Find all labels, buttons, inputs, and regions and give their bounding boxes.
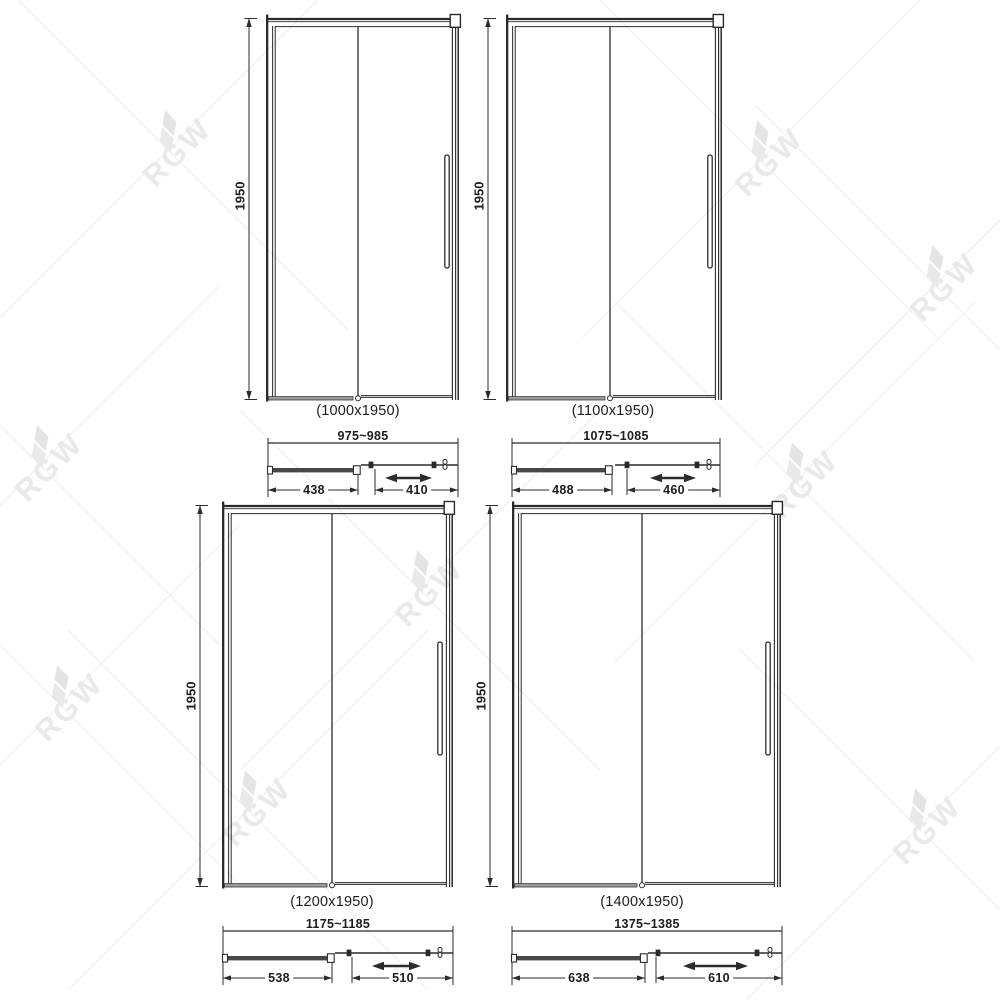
handle-top-view: [438, 947, 442, 952]
roller-marker: [755, 950, 760, 957]
top-right-cap: [444, 502, 454, 515]
technical-drawing-layer: [0, 0, 1000, 1000]
door-4-plan-view: [512, 926, 783, 985]
fixed-panel-top-view: [225, 956, 330, 960]
height-dimension-label: 1950: [234, 182, 247, 211]
dimension-arrowhead: [445, 975, 453, 980]
panel-end-cap: [353, 466, 360, 475]
roller-marker: [695, 462, 700, 469]
dimension-arrowhead: [324, 975, 332, 980]
bottom-guide-roller: [608, 396, 613, 401]
door-size-label: (1200x1950): [290, 895, 374, 910]
dimension-arrowhead: [627, 487, 635, 492]
door-size-label: (1400x1950): [600, 895, 684, 910]
slide-direction-arrowhead: [385, 474, 397, 483]
door-3-plan-view: [223, 926, 454, 985]
overall-width-label: 1075~1085: [583, 430, 649, 443]
fixed-panel-width-label: 638: [565, 971, 593, 986]
slide-direction-arrowhead: [684, 474, 696, 483]
door-1-front-view: [245, 15, 461, 402]
dimension-arrowhead: [487, 505, 492, 514]
dimension-arrowhead: [352, 975, 360, 980]
door-handle: [438, 642, 442, 755]
sliding-panel-width-label: 610: [705, 971, 733, 986]
handle-top-view: [707, 465, 711, 470]
fixed-bottom-rail: [514, 884, 637, 887]
dimension-arrowhead: [637, 975, 645, 980]
height-dimension-label: 1950: [185, 682, 198, 711]
wall-profile: [266, 15, 268, 402]
roller-marker: [432, 462, 437, 469]
bottom-guide-roller: [640, 883, 645, 888]
dimension-arrowhead: [487, 878, 492, 887]
fixed-bottom-rail: [268, 397, 353, 400]
fixed-panel-top-view: [514, 956, 643, 960]
dimension-arrowhead: [375, 487, 383, 492]
fixed-bottom-rail: [224, 884, 327, 887]
dimension-arrowhead: [512, 487, 520, 492]
top-right-cap: [772, 502, 782, 515]
dimension-arrowhead: [246, 391, 251, 400]
top-right-cap: [713, 15, 723, 28]
fixed-panel-top-view: [270, 468, 356, 472]
handle-top-view: [443, 459, 447, 464]
panel-end-cap: [605, 466, 612, 475]
slide-direction-arrowhead: [650, 474, 662, 483]
overall-width-label: 1375~1385: [614, 918, 680, 931]
slide-direction-arrowhead: [420, 474, 432, 483]
dimension-arrowhead: [450, 487, 458, 492]
handle-top-view: [443, 465, 447, 470]
door-3-front-view: [196, 502, 455, 889]
panel-end-cap: [327, 954, 334, 963]
handle-top-view: [707, 459, 711, 464]
panel-end-cap: [512, 466, 517, 474]
roller-marker: [369, 462, 374, 469]
door-size-label: (1000x1950): [316, 404, 400, 419]
wall-profile: [506, 15, 508, 402]
door-2-plan-view: [512, 438, 721, 497]
dimension-arrowhead: [350, 487, 358, 492]
door-handle: [708, 155, 712, 268]
slide-direction-arrowhead: [372, 962, 384, 971]
fixed-bottom-rail: [508, 397, 605, 400]
roller-marker: [426, 950, 431, 957]
dimension-arrowhead: [197, 505, 202, 514]
dimension-arrowhead: [268, 487, 276, 492]
fixed-panel-width-label: 538: [265, 971, 293, 986]
slide-direction-arrowhead: [409, 962, 421, 971]
slide-direction-arrowhead: [683, 962, 695, 971]
slide-direction-arrowhead: [736, 962, 748, 971]
top-right-cap: [450, 15, 460, 28]
handle-top-view: [768, 953, 772, 958]
dimension-arrowhead: [485, 391, 490, 400]
door-handle: [445, 155, 449, 268]
panel-end-cap: [223, 954, 228, 962]
sliding-panel-width-label: 410: [403, 483, 431, 498]
dimension-arrowhead: [223, 975, 231, 980]
fixed-panel-top-view: [514, 468, 608, 472]
dimension-arrowhead: [246, 18, 251, 27]
dimension-arrowhead: [656, 975, 664, 980]
panel-end-cap: [268, 466, 273, 474]
door-handle: [766, 642, 770, 755]
height-dimension-label: 1950: [475, 682, 488, 711]
handle-top-view: [438, 953, 442, 958]
roller-marker: [347, 950, 352, 957]
sliding-panel-width-label: 460: [660, 483, 688, 498]
dimension-arrowhead: [485, 18, 490, 27]
handle-top-view: [768, 947, 772, 952]
wall-profile: [222, 502, 224, 889]
bottom-guide-roller: [356, 396, 361, 401]
fixed-panel-width-label: 438: [300, 483, 328, 498]
bottom-guide-roller: [330, 883, 335, 888]
shower-door-size-diagram: RGWRGWRGWRGWRGWRGWRGWRGWRGW 1950 (1000x1…: [0, 0, 1000, 1000]
fixed-panel-width-label: 488: [549, 483, 577, 498]
panel-end-cap: [640, 954, 647, 963]
dimension-arrowhead: [774, 975, 782, 980]
dimension-arrowhead: [197, 878, 202, 887]
panel-end-cap: [512, 954, 517, 962]
door-2-front-view: [484, 15, 724, 402]
door-4-front-view: [486, 502, 783, 889]
roller-marker: [656, 950, 661, 957]
dimension-arrowhead: [512, 975, 520, 980]
height-dimension-label: 1950: [473, 182, 486, 211]
sliding-panel-width-label: 510: [389, 971, 417, 986]
overall-width-label: 975~985: [337, 430, 388, 443]
overall-width-label: 1175~1185: [306, 918, 370, 931]
dimension-arrowhead: [712, 487, 720, 492]
roller-marker: [625, 462, 630, 469]
wall-profile: [512, 502, 514, 889]
dimension-arrowhead: [604, 487, 612, 492]
door-size-label: (1100x1950): [572, 404, 655, 419]
